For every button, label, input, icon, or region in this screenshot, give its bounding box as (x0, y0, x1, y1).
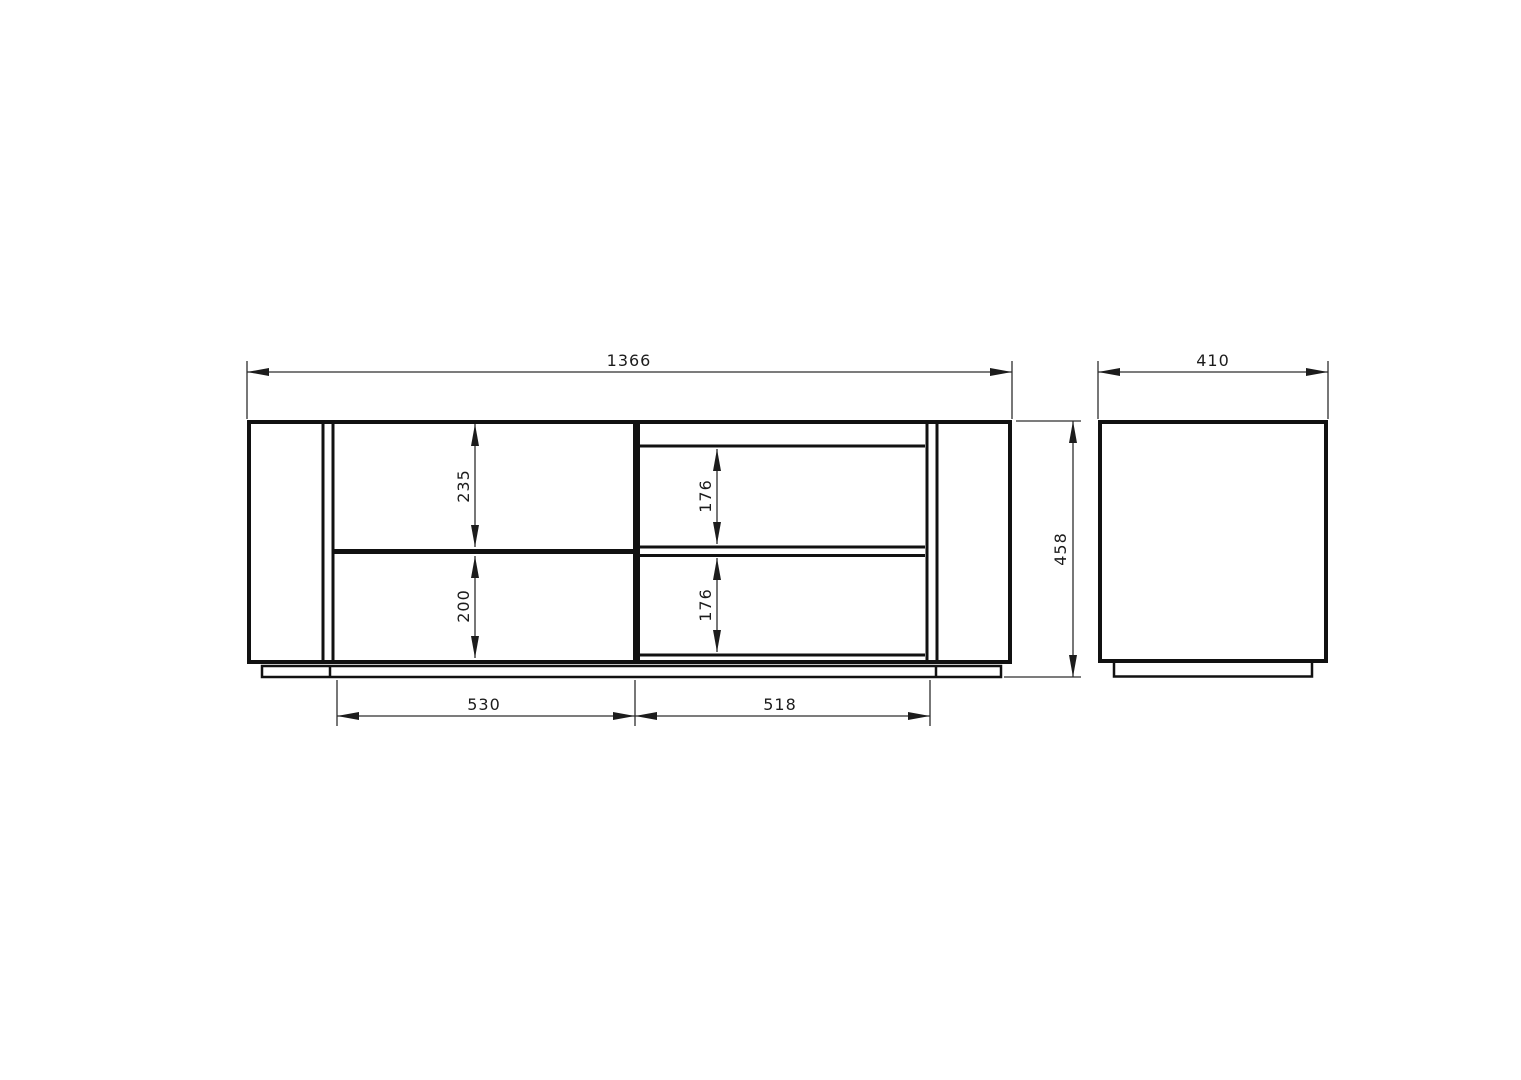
arrowhead-right-icon (613, 712, 635, 720)
side-view (1100, 422, 1326, 677)
front-plinth (262, 666, 1001, 677)
arrowhead-up-icon (713, 558, 721, 580)
arrowhead-down-icon (471, 525, 479, 547)
arrowhead-down-icon (471, 636, 479, 658)
dim-overall-width: 1366 (247, 351, 1012, 419)
dim-label-overall-width: 1366 (607, 351, 652, 370)
arrowhead-down-icon (1069, 655, 1077, 677)
dim-upper-drawer: 235 (454, 424, 479, 547)
dim-lower-shelf: 176 (696, 558, 721, 652)
arrowhead-left-icon (635, 712, 657, 720)
front-cabinet-outline (249, 422, 1010, 662)
arrowhead-down-icon (713, 522, 721, 544)
arrowhead-right-icon (1306, 368, 1328, 376)
dim-label-lower-drawer: 200 (454, 589, 473, 623)
dim-lower-drawer: 200 (454, 556, 479, 658)
arrowhead-left-icon (1098, 368, 1120, 376)
dim-label-left-opening: 530 (467, 695, 501, 714)
arrowhead-down-icon (713, 630, 721, 652)
dim-upper-shelf: 176 (696, 449, 721, 544)
dim-overall-height: 458 (1004, 421, 1081, 677)
technical-drawing: 1366 410 458 235 (0, 0, 1521, 1080)
arrowhead-up-icon (471, 556, 479, 578)
dim-left-opening: 530 (337, 680, 635, 726)
arrowhead-up-icon (713, 449, 721, 471)
dim-label-depth: 410 (1196, 351, 1230, 370)
dim-label-upper-drawer: 235 (454, 469, 473, 503)
drawing-canvas: 1366 410 458 235 (0, 0, 1521, 1080)
front-view (249, 421, 1010, 677)
side-cabinet-outline (1100, 422, 1326, 661)
dim-label-right-opening: 518 (763, 695, 797, 714)
dim-label-overall-height: 458 (1051, 532, 1070, 566)
dim-label-upper-shelf: 176 (696, 479, 715, 513)
arrowhead-left-icon (337, 712, 359, 720)
dim-right-opening: 518 (635, 680, 930, 726)
dim-depth: 410 (1098, 351, 1328, 419)
arrowhead-right-icon (908, 712, 930, 720)
arrowhead-left-icon (247, 368, 269, 376)
arrowhead-right-icon (990, 368, 1012, 376)
dim-label-lower-shelf: 176 (696, 588, 715, 622)
side-plinth (1114, 662, 1312, 677)
arrowhead-up-icon (1069, 421, 1077, 443)
arrowhead-up-icon (471, 424, 479, 446)
